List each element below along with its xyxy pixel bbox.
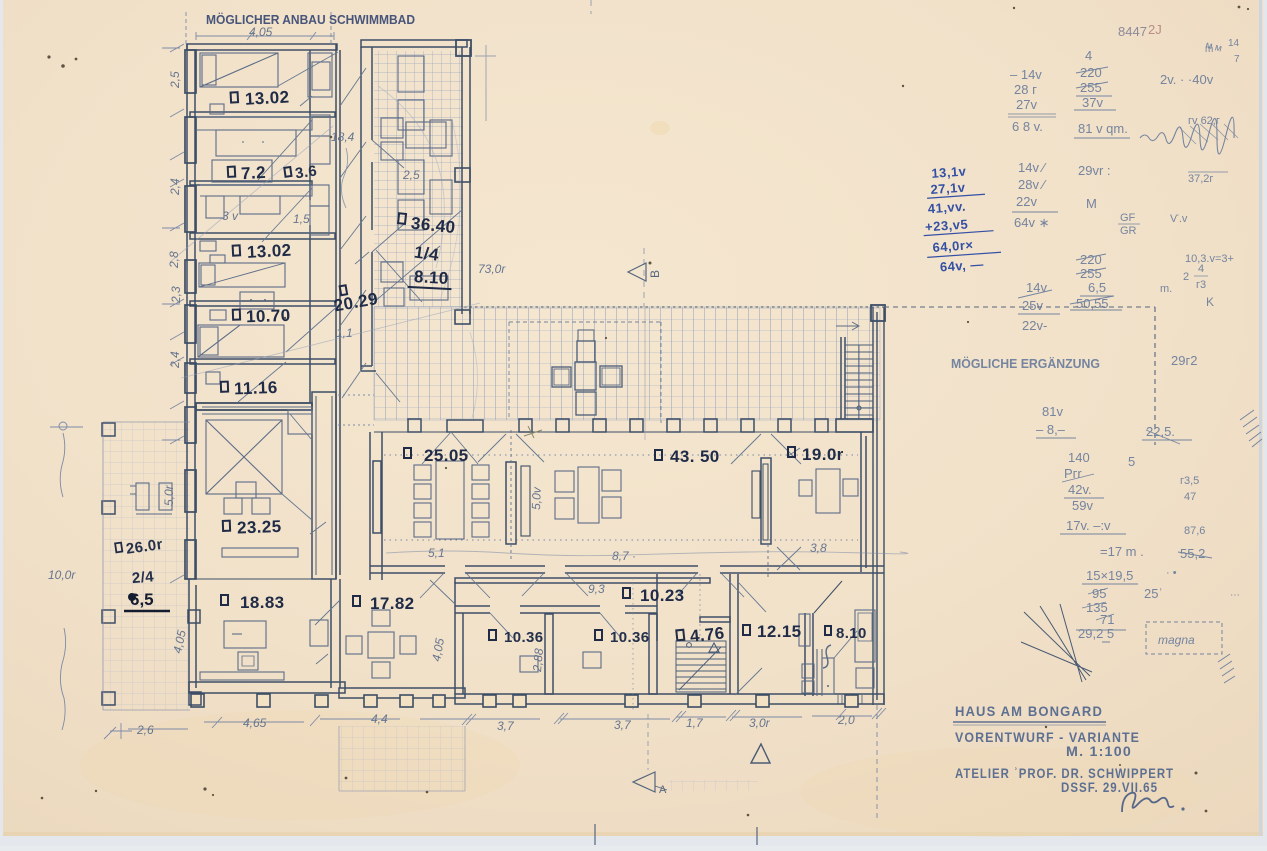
svg-text:81 v qm.: 81 v qm. <box>1078 121 1128 136</box>
svg-text:29,2 5: 29,2 5 <box>1078 626 1114 641</box>
svg-text:2,6: 2,6 <box>136 723 154 737</box>
svg-text:– 8,–: – 8,– <box>1036 422 1066 437</box>
svg-text:1,1: 1,1 <box>336 326 353 340</box>
svg-text:10.70: 10.70 <box>246 306 291 327</box>
svg-text:B: B <box>648 270 662 278</box>
svg-text:1/4: 1/4 <box>413 243 440 265</box>
svg-text:220: 220 <box>1080 252 1102 267</box>
svg-text:HAUS AM BONGARD: HAUS AM BONGARD <box>955 703 1103 719</box>
svg-text:81v: 81v <box>1042 404 1063 419</box>
svg-text:2,4: 2,4 <box>168 178 182 196</box>
svg-text:14: 14 <box>1228 38 1240 49</box>
svg-text:DSSF. 29.VII.65: DSSF. 29.VII.65 <box>1061 779 1158 795</box>
svg-text:25ʾ: 25ʾ <box>1144 586 1163 601</box>
svg-text:4: 4 <box>1085 48 1092 63</box>
svg-text:5,1: 5,1 <box>428 546 445 560</box>
svg-text:3,0r: 3,0r <box>749 716 771 730</box>
svg-text:64v ∗: 64v ∗ <box>1014 215 1049 230</box>
svg-text:10.36: 10.36 <box>610 629 650 646</box>
svg-text:55,2: 55,2 <box>1180 546 1205 561</box>
svg-text:28 г: 28 г <box>1014 82 1037 97</box>
svg-text:95: 95 <box>1092 586 1106 601</box>
svg-text:22v: 22v <box>1016 194 1037 209</box>
svg-text:+23,v5: +23,v5 <box>925 216 969 234</box>
svg-text:73,0r: 73,0r <box>478 262 506 276</box>
svg-text:г3: г3 <box>1196 279 1206 291</box>
svg-text:37,2г: 37,2г <box>1188 173 1213 185</box>
svg-text:3 v: 3 v <box>222 209 239 223</box>
svg-text:87,6: 87,6 <box>1184 525 1205 537</box>
svg-text:64v, —: 64v, — <box>939 256 984 274</box>
svg-text:8.10: 8.10 <box>836 625 867 642</box>
svg-text:12.15: 12.15 <box>757 622 802 641</box>
svg-text:5,0r: 5,0r <box>162 484 176 506</box>
svg-text:2: 2 <box>1183 271 1189 283</box>
svg-text:5: 5 <box>1128 454 1135 469</box>
svg-text:3,7: 3,7 <box>614 718 632 732</box>
svg-text:2v. · ·40v: 2v. · ·40v <box>1160 72 1214 87</box>
svg-text:255: 255 <box>1080 80 1102 95</box>
svg-text:3.6: 3.6 <box>294 162 318 182</box>
svg-text:MÖGLICHE ERGÄNZUNG: MÖGLICHE ERGÄNZUNG <box>951 356 1100 371</box>
svg-text:K: K <box>1206 295 1214 309</box>
svg-text:27v: 27v <box>1016 97 1037 112</box>
svg-text:magna: magna <box>1158 633 1195 647</box>
svg-text:14v: 14v <box>1026 280 1047 295</box>
svg-text:13,1v: 13,1v <box>931 163 967 180</box>
svg-text:4,65: 4,65 <box>243 716 267 730</box>
svg-text:MÖGLICHER ANBAU SCHWIMMBAD: MÖGLICHER ANBAU SCHWIMMBAD <box>206 12 415 27</box>
svg-text:15×19,5: 15×19,5 <box>1086 568 1133 583</box>
svg-text:4: 4 <box>1198 263 1204 275</box>
svg-text:6,5: 6,5 <box>1088 280 1106 295</box>
svg-text:10,3.v=3+: 10,3.v=3+ <box>1185 253 1234 265</box>
svg-text:1,7: 1,7 <box>686 716 704 730</box>
svg-text:18.83: 18.83 <box>240 593 285 612</box>
svg-text:13.02: 13.02 <box>247 241 292 262</box>
svg-text:8447: 8447 <box>1118 24 1147 39</box>
svg-text:· •: · • <box>1166 567 1177 579</box>
svg-text:22v-: 22v- <box>1022 318 1047 333</box>
svg-text:3,8: 3,8 <box>810 541 827 555</box>
svg-text:=17 m .: =17 m . <box>1100 544 1144 559</box>
svg-text:37v: 37v <box>1082 95 1103 110</box>
svg-text:4.76: 4.76 <box>689 623 725 646</box>
svg-text:10.36: 10.36 <box>504 629 544 646</box>
svg-text:гv 62,г: гv 62,г <box>1188 115 1220 127</box>
svg-text:23.25: 23.25 <box>237 517 282 538</box>
svg-text:18,4: 18,4 <box>331 130 355 144</box>
svg-text:M. 1:100: M. 1:100 <box>1066 743 1132 759</box>
svg-text:GF: GF <box>1120 212 1136 224</box>
svg-text:59v: 59v <box>1072 498 1093 513</box>
svg-text:2,5: 2,5 <box>168 71 182 89</box>
svg-text:2J: 2J <box>1148 22 1162 37</box>
svg-text:13.02: 13.02 <box>244 87 289 108</box>
svg-text:140: 140 <box>1068 450 1090 465</box>
svg-text:255: 255 <box>1080 266 1102 281</box>
svg-text:4,4: 4,4 <box>371 712 388 726</box>
svg-text:7: 7 <box>1234 54 1240 65</box>
svg-text:10.23: 10.23 <box>640 586 685 605</box>
svg-text:41,vv.: 41,vv. <box>927 199 966 217</box>
svg-text:8.10: 8.10 <box>414 267 450 288</box>
svg-text:A: A <box>659 784 667 796</box>
svg-text:29г2: 29г2 <box>1171 353 1197 368</box>
svg-text:47: 47 <box>1184 491 1196 503</box>
svg-text:6 8 v.: 6 8 v. <box>1012 119 1043 134</box>
svg-text:2,8: 2,8 <box>167 251 181 269</box>
svg-text:8,7 ·: 8,7 · <box>612 549 636 563</box>
svg-text:2,88: 2,88 <box>530 647 546 673</box>
svg-text:m.: m. <box>1160 283 1172 295</box>
svg-text:Ѵ.v: Ѵ.v <box>1170 213 1188 225</box>
svg-text:29vr :: 29vr : <box>1078 163 1111 178</box>
svg-text:2,4: 2,4 <box>168 351 182 369</box>
svg-text:11.16: 11.16 <box>234 378 278 399</box>
svg-text:17.82: 17.82 <box>370 594 415 613</box>
svg-text:27,1v: 27,1v <box>930 180 966 197</box>
svg-text:2,3: 2,3 <box>169 286 183 304</box>
svg-text:10,0r: 10,0r <box>48 568 76 582</box>
svg-text:28v ∕: 28v ∕ <box>1018 177 1047 192</box>
svg-text:GR: GR <box>1120 225 1137 237</box>
svg-text:2,0: 2,0 <box>837 713 855 727</box>
svg-text:2,5: 2,5 <box>402 168 420 182</box>
svg-text:220: 220 <box>1080 65 1102 80</box>
svg-text:14v ∕: 14v ∕ <box>1018 160 1047 175</box>
svg-text:43. 50: 43. 50 <box>670 447 720 466</box>
svg-text:9,3: 9,3 <box>588 582 605 596</box>
svg-text:4,05: 4,05 <box>249 25 273 39</box>
svg-text:64,0r×: 64,0r× <box>932 237 974 255</box>
svg-text:17v. –:v: 17v. –:v <box>1066 518 1111 533</box>
svg-text:42v.: 42v. <box>1068 482 1092 497</box>
svg-text:– 14v: – 14v <box>1010 67 1042 82</box>
svg-text:25.05: 25.05 <box>424 446 469 465</box>
svg-text:г3,5: г3,5 <box>1180 475 1199 487</box>
svg-text:5,0v: 5,0v <box>529 486 544 510</box>
svg-text:M: M <box>1086 196 1097 211</box>
svg-text:⋯: ⋯ <box>1230 590 1240 601</box>
svg-text:3,7: 3,7 <box>497 719 515 733</box>
svg-text:7.2: 7.2 <box>241 163 267 183</box>
svg-text:2/4: 2/4 <box>131 568 155 587</box>
svg-text:19.0r: 19.0r <box>802 445 844 464</box>
svg-text:25v: 25v <box>1022 298 1043 313</box>
svg-text:1,5: 1,5 <box>293 212 310 226</box>
